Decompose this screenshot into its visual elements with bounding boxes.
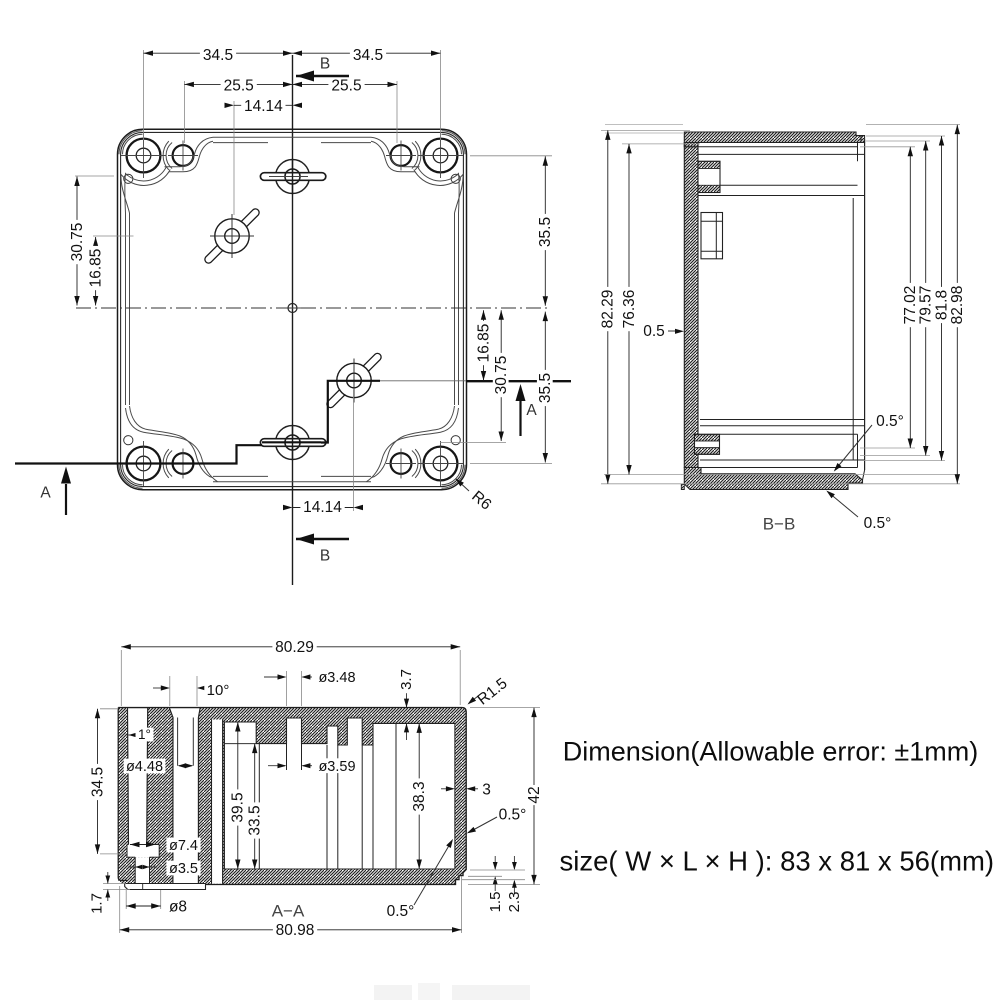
svg-text:ø3.59: ø3.59 bbox=[318, 759, 355, 775]
svg-text:A−A: A−A bbox=[272, 902, 305, 921]
svg-text:2.3: 2.3 bbox=[506, 892, 523, 913]
svg-text:30.75: 30.75 bbox=[493, 356, 510, 395]
svg-text:ø3.48: ø3.48 bbox=[318, 670, 355, 686]
svg-text:1.7: 1.7 bbox=[89, 893, 106, 914]
svg-text:82.29: 82.29 bbox=[600, 290, 617, 329]
svg-text:ø7.4: ø7.4 bbox=[169, 838, 198, 854]
svg-text:ø8: ø8 bbox=[169, 898, 187, 915]
svg-text:16.85: 16.85 bbox=[88, 249, 105, 288]
svg-text:80.29: 80.29 bbox=[275, 639, 314, 656]
svg-text:0.5°: 0.5° bbox=[387, 903, 415, 920]
svg-text:ø4.48: ø4.48 bbox=[126, 759, 163, 775]
svg-text:80.98: 80.98 bbox=[276, 922, 315, 939]
svg-text:76.36: 76.36 bbox=[621, 290, 638, 329]
svg-text:ø3.5: ø3.5 bbox=[169, 861, 198, 877]
svg-text:0.5°: 0.5° bbox=[499, 806, 527, 823]
svg-text:82.98: 82.98 bbox=[949, 286, 966, 325]
svg-text:25.5: 25.5 bbox=[224, 77, 254, 94]
svg-text:0.5: 0.5 bbox=[643, 323, 665, 340]
svg-text:16.85: 16.85 bbox=[475, 324, 492, 363]
svg-text:30.75: 30.75 bbox=[69, 223, 86, 262]
svg-text:38.3: 38.3 bbox=[411, 781, 428, 811]
svg-text:1°: 1° bbox=[138, 727, 151, 742]
svg-text:0.5°: 0.5° bbox=[864, 515, 892, 532]
svg-text:size( W × L × H ): 83 x 81 x 5: size( W × L × H ): 83 x 81 x 56(mm) bbox=[560, 846, 995, 877]
svg-text:42: 42 bbox=[526, 786, 543, 803]
svg-text:35.5: 35.5 bbox=[537, 217, 554, 247]
svg-text:14.14: 14.14 bbox=[244, 98, 283, 115]
svg-text:B−B: B−B bbox=[763, 515, 796, 534]
svg-text:B: B bbox=[320, 547, 330, 564]
svg-text:39.5: 39.5 bbox=[230, 792, 247, 822]
svg-text:A: A bbox=[40, 484, 51, 501]
svg-text:A: A bbox=[526, 402, 537, 419]
svg-text:Dimension(Allowable error: ±1m: Dimension(Allowable error: ±1mm) bbox=[563, 737, 978, 767]
svg-text:33.5: 33.5 bbox=[247, 805, 264, 835]
svg-text:25.5: 25.5 bbox=[331, 77, 361, 94]
svg-text:1.5: 1.5 bbox=[487, 892, 504, 913]
svg-text:3: 3 bbox=[482, 781, 491, 798]
svg-text:3.7: 3.7 bbox=[398, 669, 415, 690]
svg-text:81.8: 81.8 bbox=[933, 290, 950, 320]
svg-text:14.14: 14.14 bbox=[303, 499, 342, 516]
svg-text:79.57: 79.57 bbox=[918, 286, 935, 325]
svg-text:10°: 10° bbox=[207, 682, 230, 699]
svg-text:0.5°: 0.5° bbox=[876, 413, 904, 430]
svg-text:34.5: 34.5 bbox=[203, 47, 233, 64]
svg-text:35.5: 35.5 bbox=[537, 373, 554, 403]
svg-text:34.5: 34.5 bbox=[353, 47, 383, 64]
svg-text:34.5: 34.5 bbox=[89, 767, 106, 797]
svg-text:B: B bbox=[320, 55, 330, 72]
